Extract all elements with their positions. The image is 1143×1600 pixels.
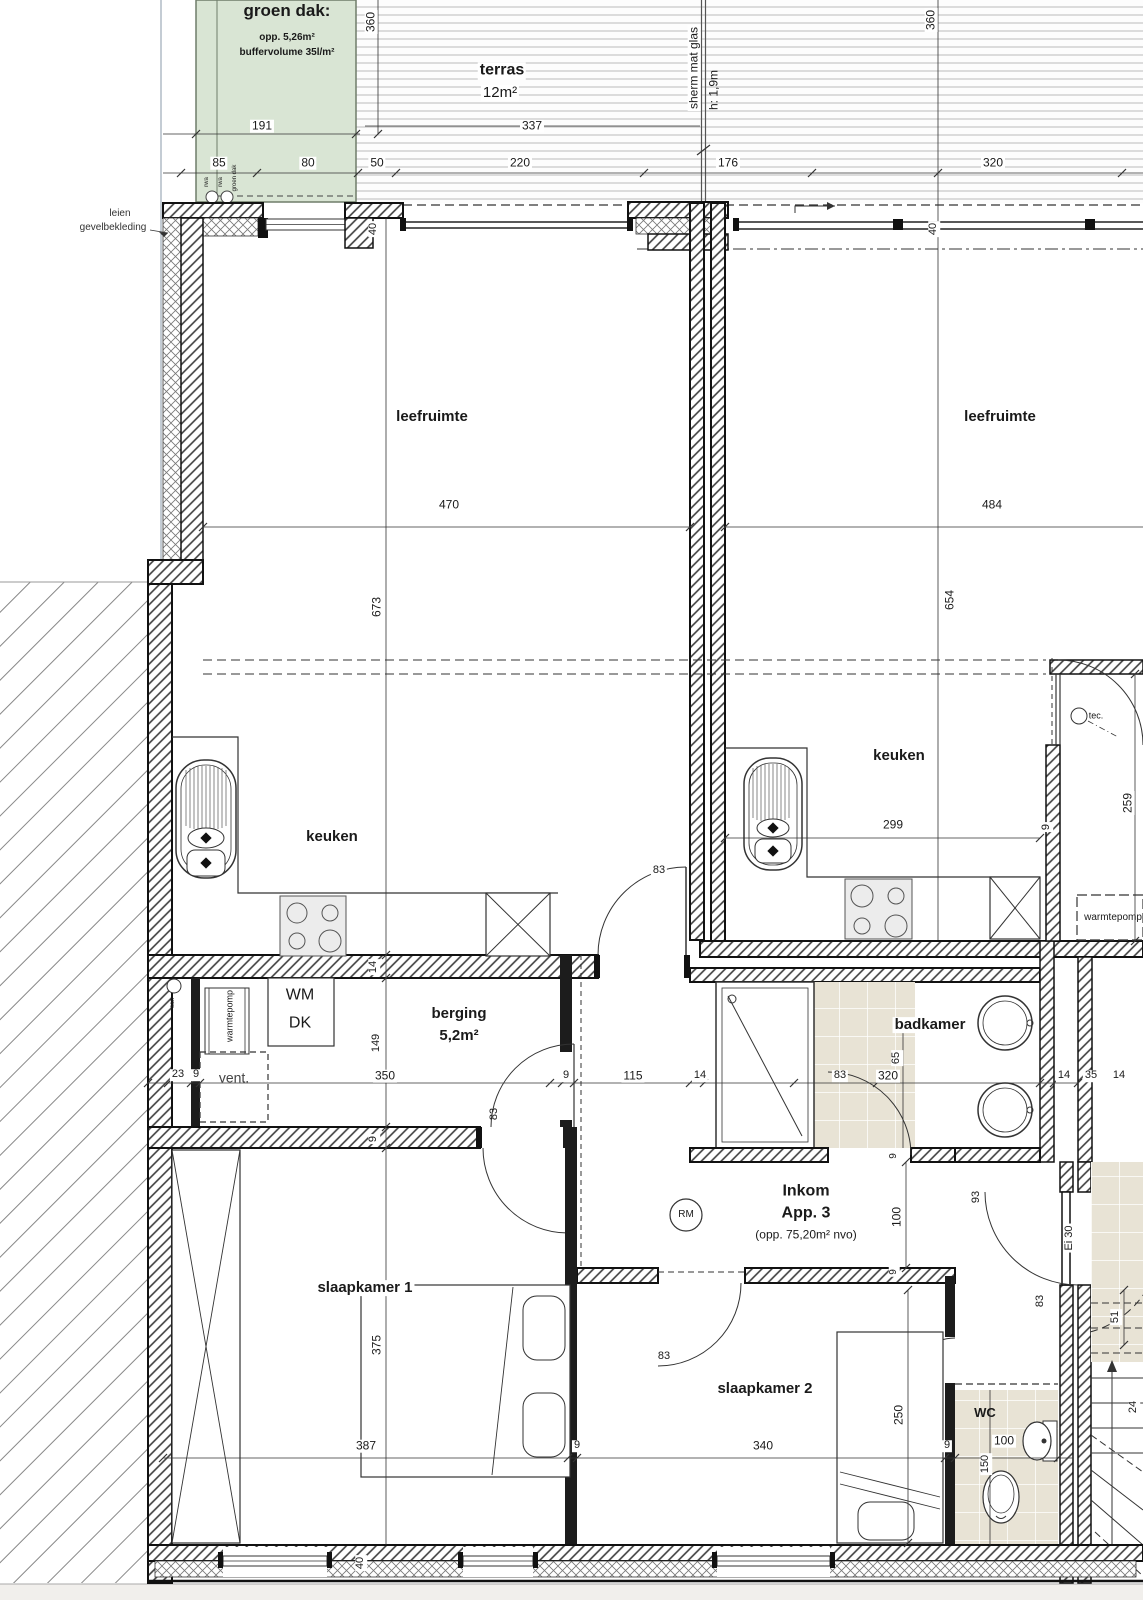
- dim-40-topleft: 40: [368, 221, 380, 237]
- dim-340: 340: [751, 1440, 775, 1453]
- note-warmtepomp-left: warmtepomp: [225, 990, 234, 1042]
- dim-150: 150: [980, 1453, 992, 1475]
- room-keuken-left: keuken: [306, 829, 358, 845]
- room-berging-area: 5,2m²: [439, 1028, 478, 1044]
- dim-80: 80: [299, 157, 316, 170]
- dim-375: 375: [371, 1333, 384, 1357]
- dim-50: 50: [368, 157, 385, 170]
- dim-93: 93: [971, 1189, 983, 1205]
- dim-9-keukenwall: 9: [1041, 822, 1053, 832]
- dim-9-f: 9: [572, 1440, 582, 1452]
- room-inkom-1: Inkom: [782, 1184, 829, 1201]
- dim-191: 191: [250, 120, 274, 133]
- dim-51: 51: [1110, 1309, 1122, 1325]
- dim-9-c: 9: [368, 1134, 380, 1144]
- note-rwa-groendak: groen dak: [232, 165, 238, 192]
- dim-83-keukendoor: 83: [651, 865, 667, 877]
- room-groendak-buffer: buffervolume 35l/m²: [239, 48, 334, 59]
- dim-115: 115: [621, 1070, 644, 1083]
- dim-65: 65: [891, 1050, 903, 1066]
- room-tec: tec.: [1089, 711, 1104, 720]
- dim-360-right: 360: [925, 8, 938, 32]
- dim-83-sk2: 83: [658, 1351, 670, 1363]
- room-groendak-title: groen dak:: [244, 2, 331, 20]
- dim-9-e: 9: [889, 1267, 900, 1277]
- dim-220: 220: [508, 157, 532, 170]
- room-warmtepomp-right: warmtepomp: [1084, 913, 1142, 924]
- room-wc: WC: [974, 1406, 996, 1420]
- note-gevelbekleding: gevelbekleding: [80, 223, 147, 234]
- dim-35: 35: [1083, 1070, 1099, 1082]
- note-rm: RM: [678, 1210, 694, 1221]
- note-dk: DK: [289, 1016, 311, 1033]
- dim-484: 484: [980, 499, 1004, 512]
- room-groendak-opp: opp. 5,26m²: [259, 33, 315, 44]
- dim-40-topright: 40: [928, 221, 940, 237]
- room-leefruimte-right: leefruimte: [964, 409, 1036, 425]
- note-vent: vent.: [219, 1071, 249, 1086]
- dim-176: 176: [716, 157, 740, 170]
- dim-40-bottom: 40: [355, 1555, 367, 1571]
- note-leien: leien: [109, 209, 130, 220]
- dim-654: 654: [944, 588, 957, 612]
- room-terras-title: terras: [478, 63, 526, 80]
- dim-470: 470: [437, 499, 461, 512]
- room-leefruimte-left: leefruimte: [396, 409, 468, 425]
- dim-100-inkom: 100: [891, 1205, 904, 1229]
- room-keuken-right: keuken: [873, 748, 925, 764]
- note-rwa-1: rwa: [204, 177, 210, 187]
- dim-299: 299: [881, 819, 905, 832]
- room-inkom-3: (opp. 75,20m² nvo): [755, 1229, 856, 1242]
- dim-350: 350: [373, 1070, 397, 1083]
- dim-14-c: 14: [1056, 1070, 1072, 1082]
- dim-83-berging: 83: [489, 1108, 501, 1120]
- dim-83-bad: 83: [832, 1070, 848, 1082]
- note-wm: WM: [286, 988, 314, 1005]
- dim-9-b: 9: [561, 1070, 571, 1082]
- dim-250: 250: [893, 1403, 906, 1427]
- room-badkamer: badkamer: [893, 1017, 968, 1033]
- dim-9-d: 9: [889, 1151, 900, 1161]
- note-sherm: sherm mat glas: [688, 25, 701, 111]
- dim-320-bad: 320: [876, 1070, 900, 1083]
- dim-85: 85: [210, 157, 227, 170]
- dim-24: 24: [1128, 1399, 1140, 1415]
- note-sherm-h: h: 1,9m: [708, 70, 721, 110]
- room-slaapkamer1: slaapkamer 1: [315, 1280, 414, 1296]
- dim-83-stair: 83: [1035, 1295, 1047, 1307]
- dim-360-left: 360: [365, 10, 378, 34]
- room-terras-area: 12m²: [481, 85, 519, 101]
- dim-337: 337: [520, 120, 544, 133]
- plan-labels: groen dak:opp. 5,26m²buffervolume 35l/m²…: [0, 0, 1143, 1600]
- dim-9-a: 9: [191, 1069, 201, 1081]
- room-slaapkamer2: slaapkamer 2: [715, 1381, 814, 1397]
- note-ei30: Ei 30: [1064, 1223, 1076, 1252]
- dim-23: 23: [170, 1069, 186, 1081]
- note-san: san: [170, 998, 176, 1008]
- dim-14-b: 14: [692, 1070, 708, 1082]
- dim-9-g: 9: [942, 1440, 952, 1452]
- note-rwa-2: rwa: [218, 177, 224, 187]
- floor-plan: groen dak:opp. 5,26m²buffervolume 35l/m²…: [0, 0, 1143, 1600]
- dim-14-d: 14: [1111, 1070, 1127, 1082]
- dim-149: 149: [371, 1032, 383, 1054]
- dim-14-wall: 14: [368, 959, 380, 975]
- room-berging-title: berging: [432, 1006, 487, 1022]
- dim-387: 387: [354, 1440, 378, 1453]
- room-inkom-2: App. 3: [782, 1206, 831, 1223]
- dim-259: 259: [1122, 791, 1135, 815]
- dim-100-wc: 100: [992, 1435, 1016, 1448]
- dim-320-terras: 320: [981, 157, 1005, 170]
- dim-673: 673: [371, 595, 384, 619]
